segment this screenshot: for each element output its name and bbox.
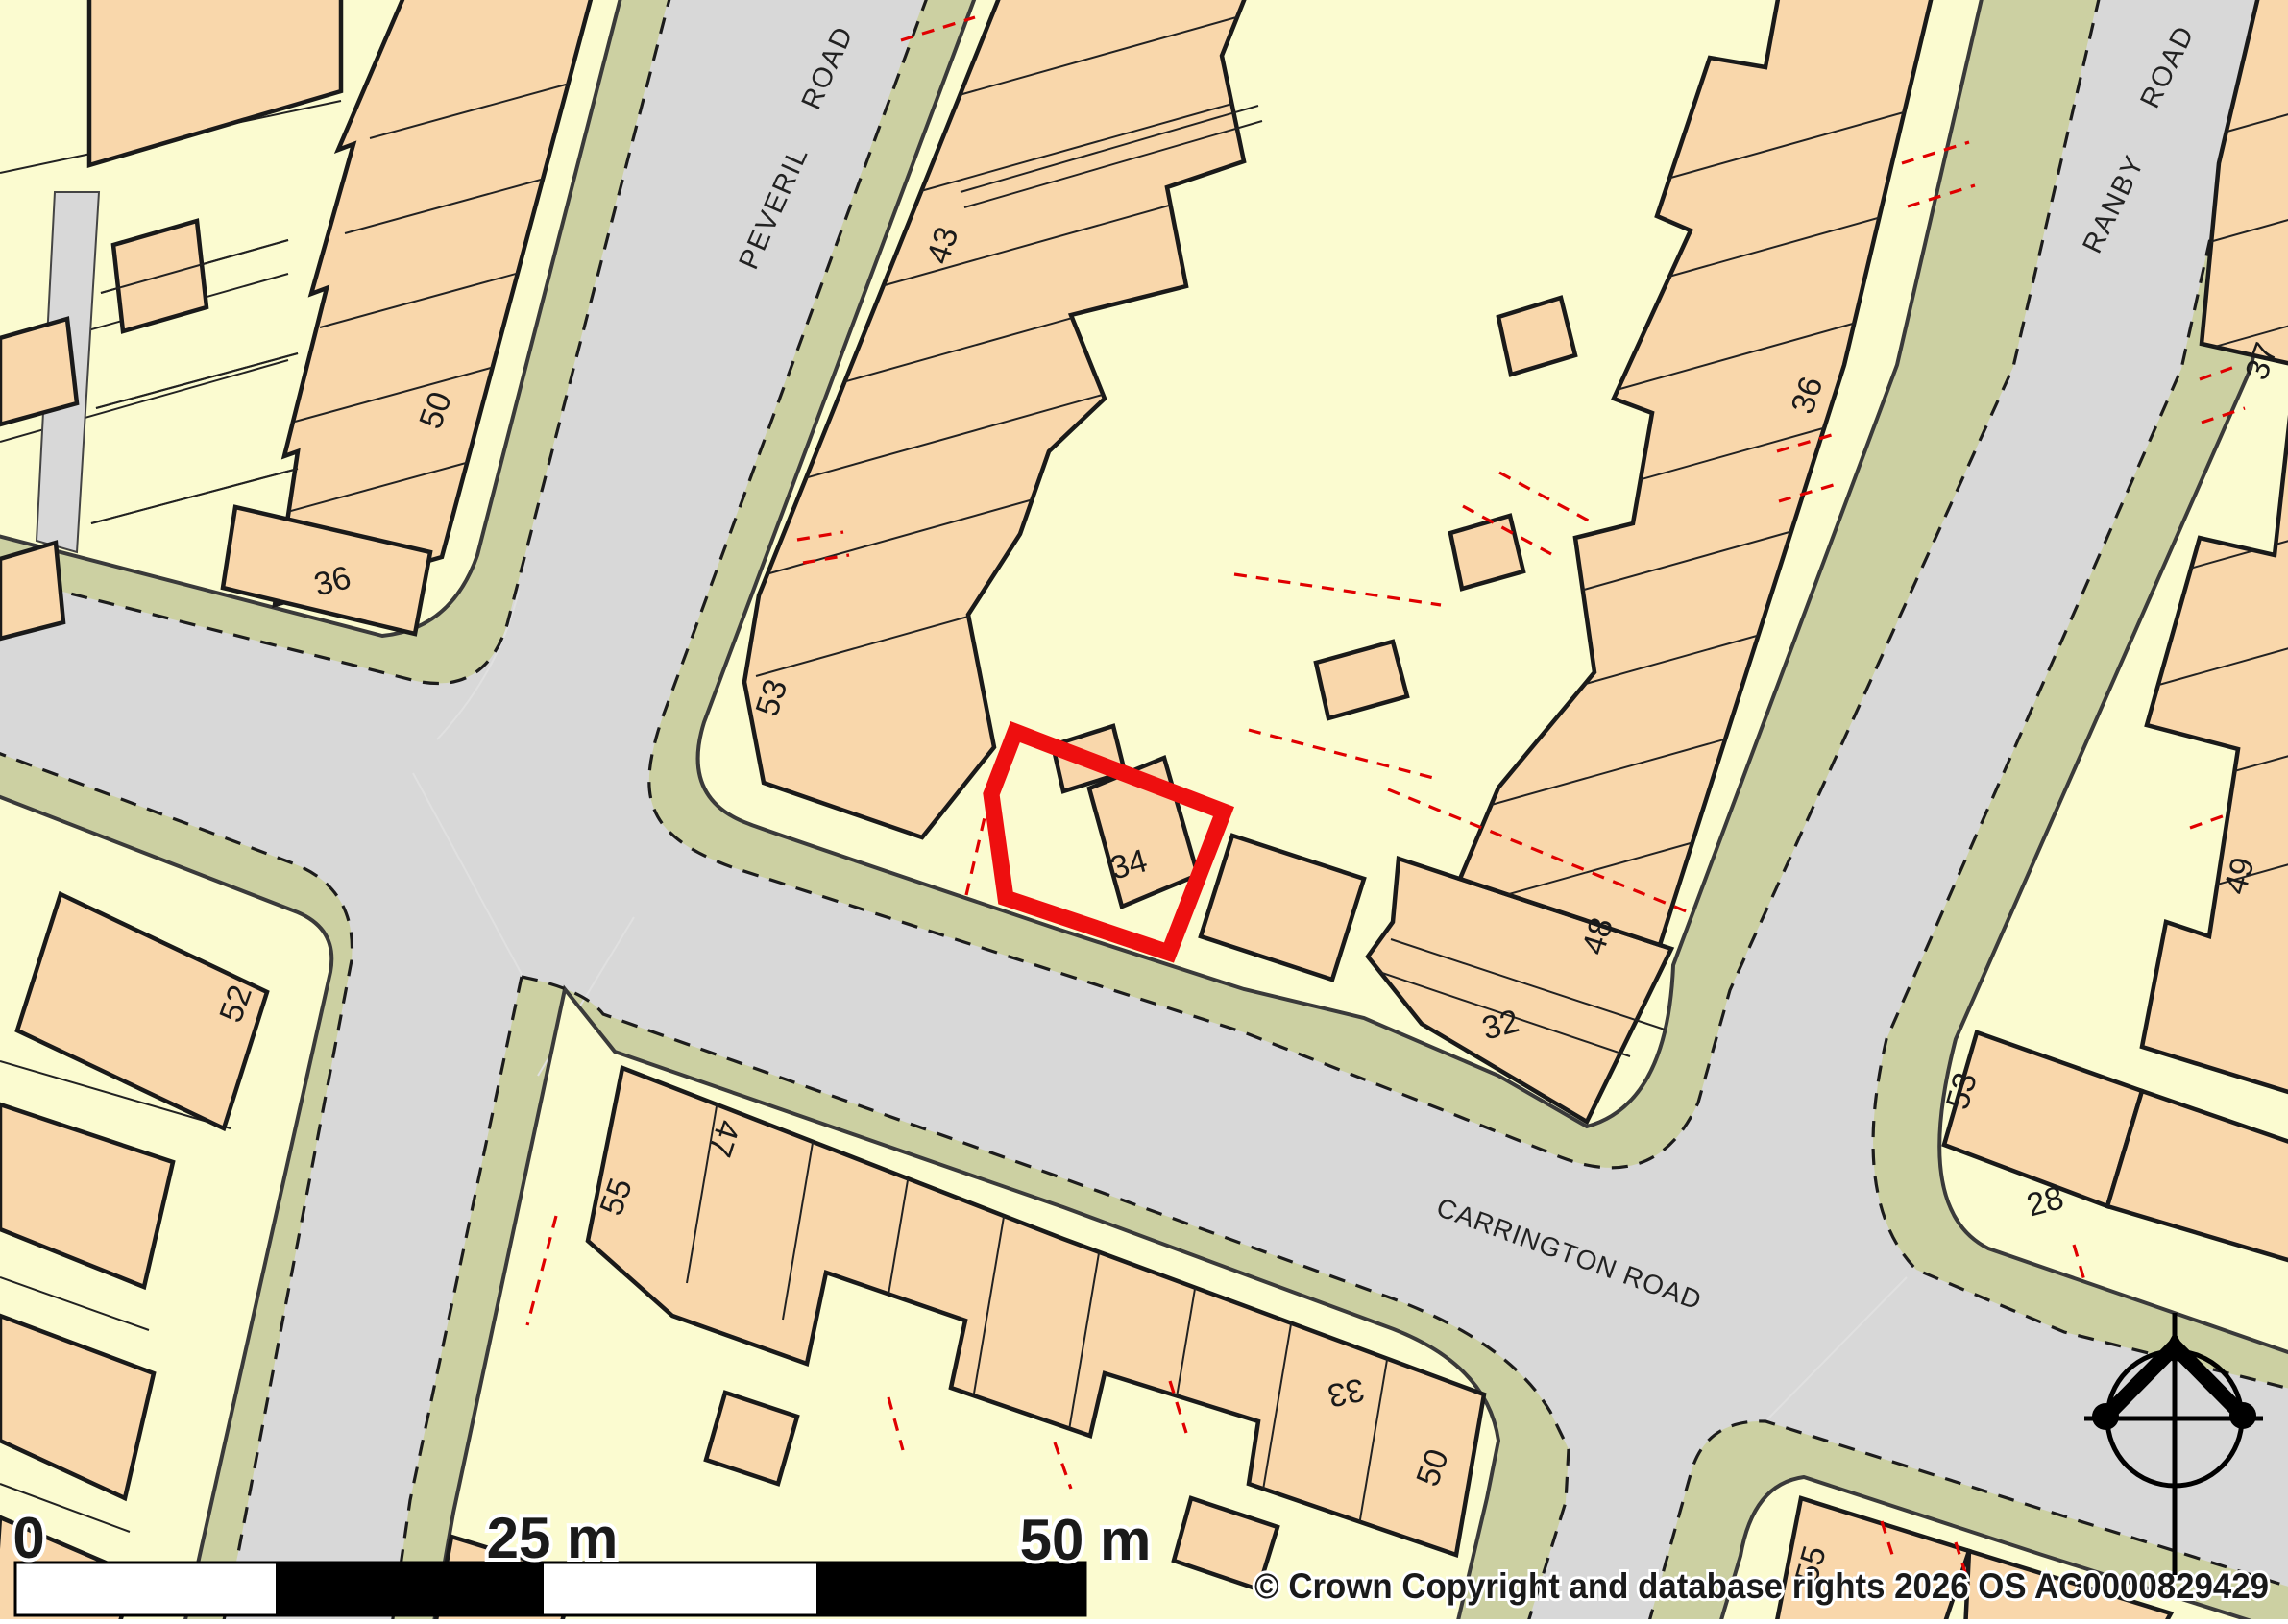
svg-text:© Crown Copyright and database: © Crown Copyright and database rights 20…	[1254, 1566, 2269, 1606]
svg-text:50 m: 50 m	[1020, 1508, 1152, 1572]
svg-text:33: 33	[1325, 1370, 1368, 1414]
svg-text:25 m: 25 m	[487, 1506, 619, 1570]
svg-text:0: 0	[12, 1506, 44, 1570]
